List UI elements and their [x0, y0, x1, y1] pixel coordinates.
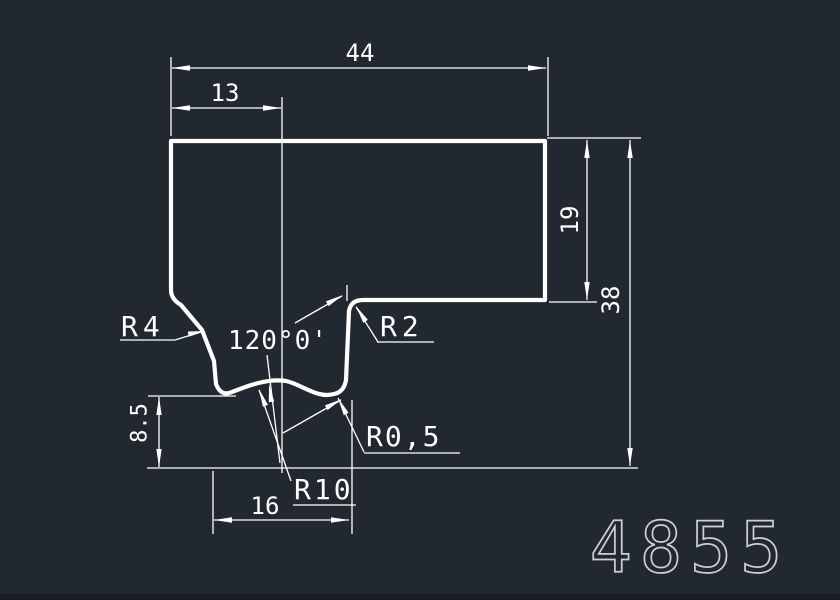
part-number: 4855	[590, 507, 791, 589]
bottom-edge-strip	[0, 594, 840, 600]
r0-5-text: R0,5	[366, 420, 441, 453]
cad-drawing-canvas: 44 13 19 38 8.5 16	[0, 0, 840, 600]
dim-38-text: 38	[597, 286, 625, 315]
dim-13-text: 13	[211, 79, 240, 107]
angle-text: 120°0'	[228, 326, 328, 356]
r2-text: R2	[380, 310, 424, 343]
r4-text: R4	[121, 310, 165, 343]
r10-text: R10	[294, 473, 354, 506]
dim-8-5-text: 8.5	[128, 403, 153, 443]
dim-44-text: 44	[346, 39, 375, 67]
dim-16-text: 16	[251, 492, 280, 520]
dim-19-text: 19	[556, 206, 584, 235]
